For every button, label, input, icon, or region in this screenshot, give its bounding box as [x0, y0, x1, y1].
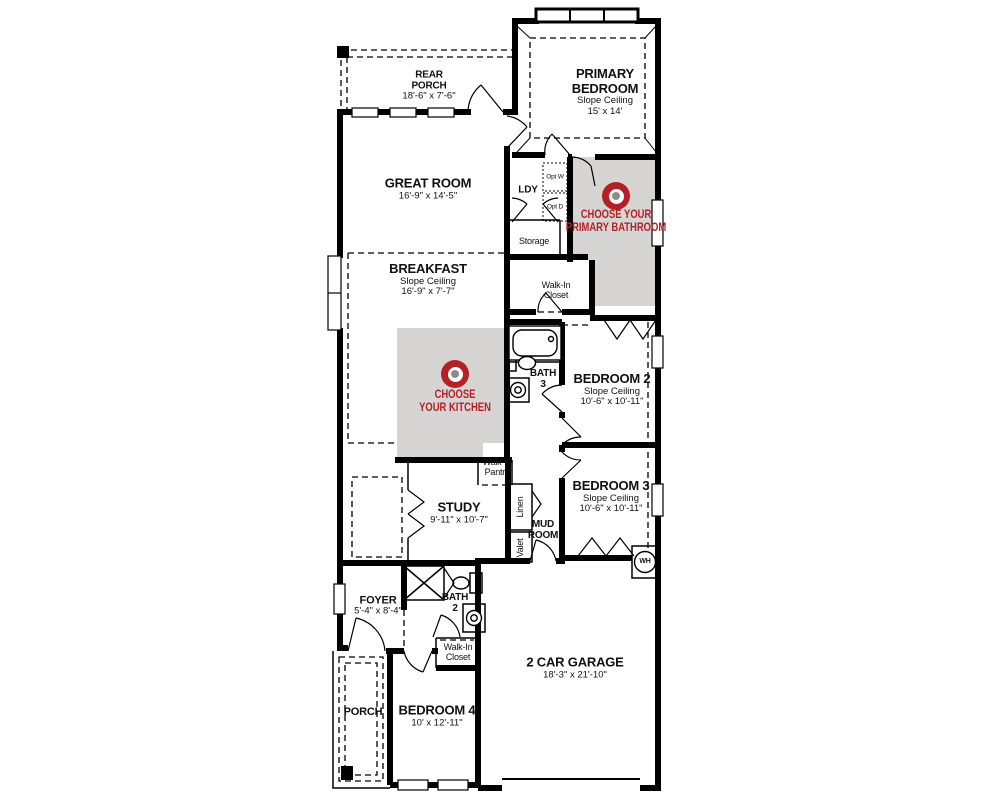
room-name: BEDROOM 3 — [573, 479, 650, 494]
room-name: PORCH — [344, 706, 383, 718]
room-label-opt-dryer: Opt D — [546, 203, 564, 210]
room-label-storage: Storage — [519, 236, 549, 246]
room-name: BEDROOM 4 — [399, 703, 476, 718]
choose-kitchen-hotspot[interactable]: CHOOSE YOUR KITCHEN — [419, 389, 491, 415]
room-name: 2 CAR GARAGE — [526, 655, 623, 670]
room-label-bath-3: BATH 3 — [526, 368, 560, 390]
room-dims: 10' x 12'-11" — [399, 718, 476, 729]
hotspot-line2: YOUR KITCHEN — [419, 402, 491, 415]
room-label-valet: Valet — [515, 539, 525, 558]
room-name: Walk-In Closet — [437, 642, 479, 662]
room-name: REAR PORCH — [405, 70, 453, 92]
room-label-foyer: FOYER 5'-4" x 8'-4" — [354, 595, 402, 618]
room-label-study: STUDY 9'-11" x 10'-7" — [430, 500, 488, 525]
room-dims: 16'-9" x 14'-5" — [385, 191, 472, 202]
room-dims: 10'-6" x 10'-11" — [573, 504, 650, 515]
target-icon-dot — [612, 192, 620, 200]
room-dims: 5'-4" x 8'-4" — [354, 607, 402, 618]
room-name: Opt W — [546, 173, 564, 180]
room-label-great-room: GREAT ROOM 16'-9" x 14'-5" — [385, 176, 472, 201]
room-dims: 18'-3" x 21'-10" — [526, 670, 623, 681]
room-label-walk-in-pantry: Walk-In Pantry — [476, 457, 518, 477]
room-label-primary-bedroom: PRIMARY BEDROOM Slope Ceiling 15' x 14' — [559, 67, 651, 117]
room-label-mud-room: MUD ROOM — [521, 519, 565, 541]
room-name: MUD ROOM — [521, 519, 565, 541]
room-name: GREAT ROOM — [385, 176, 472, 191]
room-name: PRIMARY BEDROOM — [559, 67, 651, 96]
room-name: Opt D — [546, 203, 564, 210]
room-label-laundry: LDY — [518, 184, 537, 195]
room-label-breakfast: BREAKFAST Slope Ceiling 16'-9" x 7'-7" — [389, 262, 467, 298]
room-name: BATH 3 — [526, 368, 560, 390]
room-name: BATH 2 — [438, 592, 472, 614]
room-name: BEDROOM 2 — [574, 372, 651, 387]
room-label-bedroom-2: BEDROOM 2 Slope Ceiling 10'-6" x 10'-11" — [574, 372, 651, 408]
room-dims: 16'-9" x 7'-7" — [389, 287, 467, 298]
choose-primary-bathroom-hotspot[interactable]: CHOOSE YOUR PRIMARY BATHROOM — [566, 209, 666, 235]
hotspot-line1: CHOOSE YOUR — [566, 209, 666, 222]
room-label-bedroom-4: BEDROOM 4 10' x 12'-11" — [399, 703, 476, 728]
room-name: Storage — [519, 236, 549, 246]
room-dims: 9'-11" x 10'-7" — [430, 515, 488, 526]
hotspot-line1: CHOOSE — [419, 389, 491, 402]
room-name: Valet — [515, 539, 525, 558]
room-name: WH — [639, 558, 650, 566]
target-icon-primary-bathroom[interactable] — [602, 182, 630, 210]
room-name: Linen — [515, 496, 525, 517]
room-dims: 18'-6" x 7'-6" — [402, 92, 455, 103]
room-label-opt-washer: Opt W — [546, 173, 564, 180]
room-dims: 15' x 14' — [559, 107, 651, 118]
room-label-rear-porch: REAR PORCH 18'-6" x 7'-6" — [402, 70, 455, 103]
room-name: LDY — [518, 184, 537, 195]
room-label-water-heater: WH — [639, 558, 650, 566]
floor-plan-page: REAR PORCH 18'-6" x 7'-6" PRIMARY BEDROO… — [0, 0, 1000, 800]
floor-plan-drawing — [0, 0, 1000, 800]
room-label-bath-2: BATH 2 — [438, 592, 472, 614]
room-name: BREAKFAST — [389, 262, 467, 277]
target-icon-ring — [448, 367, 463, 382]
room-label-bedroom-3: BEDROOM 3 Slope Ceiling 10'-6" x 10'-11" — [573, 479, 650, 515]
room-label-linen: Linen — [515, 496, 525, 517]
hotspot-line2: PRIMARY BATHROOM — [566, 222, 666, 235]
room-label-walk-in-closet-bedroom4: Walk-In Closet — [437, 642, 479, 662]
room-name: Walk-In Closet — [535, 280, 577, 300]
target-icon-kitchen[interactable] — [441, 360, 469, 388]
room-label-porch: PORCH — [344, 706, 383, 718]
target-icon-ring — [609, 189, 624, 204]
room-label-garage: 2 CAR GARAGE 18'-3" x 21'-10" — [526, 655, 623, 680]
room-name: Walk-In Pantry — [476, 457, 518, 477]
room-dims: 10'-6" x 10'-11" — [574, 397, 651, 408]
room-name: STUDY — [430, 500, 488, 515]
room-label-walk-in-closet-primary: Walk-In Closet — [535, 280, 577, 300]
target-icon-dot — [451, 370, 459, 378]
